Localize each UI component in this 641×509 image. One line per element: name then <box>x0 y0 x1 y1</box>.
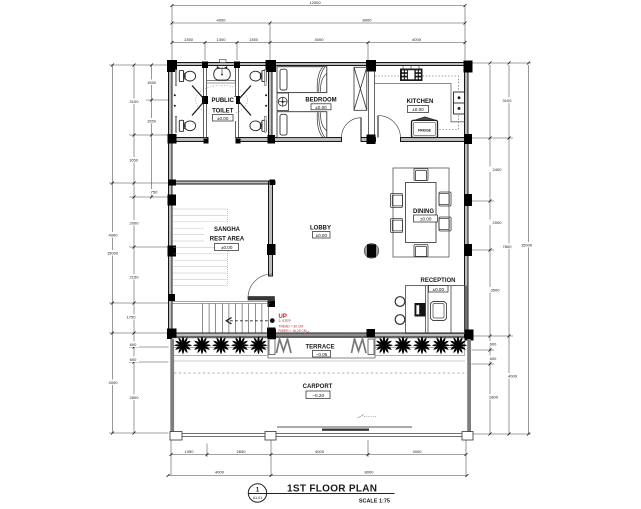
svg-text:BEDROOM: BEDROOM <box>305 98 336 104</box>
svg-text:±0.00: ±0.00 <box>420 217 432 222</box>
svg-text:2000: 2000 <box>493 220 503 225</box>
svg-text:4000: 4000 <box>109 380 119 385</box>
svg-text:3500: 3500 <box>491 288 501 293</box>
svg-text:4000: 4000 <box>217 18 227 23</box>
svg-text:KITCHEN: KITCHEN <box>407 99 434 105</box>
svg-text:2650: 2650 <box>237 449 247 454</box>
svg-text:1350: 1350 <box>184 37 194 42</box>
svg-text:REST AREA: REST AREA <box>210 237 245 243</box>
svg-text:1750: 1750 <box>127 315 137 320</box>
svg-text:±0.00: ±0.00 <box>412 107 424 112</box>
svg-text:SANGHA: SANGHA <box>214 227 241 233</box>
svg-text:A1-01: A1-01 <box>253 496 262 500</box>
svg-text:1300: 1300 <box>217 37 227 42</box>
svg-text:SCALE 1:75: SCALE 1:75 <box>359 499 390 505</box>
svg-text:750: 750 <box>151 190 158 195</box>
svg-text:600: 600 <box>130 342 137 347</box>
svg-text:600: 600 <box>130 357 137 362</box>
svg-text:1350: 1350 <box>185 449 195 454</box>
svg-text:4000: 4000 <box>315 37 325 42</box>
svg-text:RECEPTION: RECEPTION <box>420 278 455 284</box>
svg-text:7800: 7800 <box>503 244 513 249</box>
svg-text:±0.00: ±0.00 <box>433 287 445 292</box>
svg-text:4000: 4000 <box>508 374 518 379</box>
svg-text:2800: 2800 <box>489 395 499 400</box>
svg-text:RISER = 16,25 CM: RISER = 16,25 CM <box>279 329 307 333</box>
svg-text:3100: 3100 <box>503 98 513 103</box>
svg-text:2800: 2800 <box>130 395 140 400</box>
svg-text:CARPORT: CARPORT <box>303 384 333 390</box>
svg-text:−0.05: −0.05 <box>316 352 328 357</box>
svg-text:DINING: DINING <box>413 209 434 215</box>
svg-text:1350: 1350 <box>249 37 259 42</box>
svg-text:8000: 8000 <box>363 18 373 23</box>
svg-text:1550: 1550 <box>147 119 157 124</box>
svg-text:±0.00: ±0.00 <box>217 116 229 121</box>
svg-text:4000: 4000 <box>315 449 325 454</box>
svg-text:15000: 15000 <box>107 251 119 256</box>
svg-text:1650: 1650 <box>129 158 139 163</box>
svg-text:15000: 15000 <box>521 243 533 248</box>
svg-text:3100: 3100 <box>130 99 140 104</box>
svg-text:2000: 2000 <box>130 221 140 226</box>
svg-text:600: 600 <box>490 342 497 347</box>
svg-text:TERRACE: TERRACE <box>305 345 334 351</box>
svg-text:1550: 1550 <box>147 80 157 85</box>
svg-text:TREAD = 30 CM: TREAD = 30 CM <box>279 324 304 328</box>
svg-text:4000: 4000 <box>413 449 423 454</box>
svg-text:2400: 2400 <box>493 167 503 172</box>
svg-text:FRIDGE: FRIDGE <box>418 129 432 133</box>
svg-text:8000: 8000 <box>365 470 375 475</box>
svg-text:4000: 4000 <box>215 470 225 475</box>
svg-text:1ST FLOOR PLAN: 1ST FLOOR PLAN <box>287 484 377 495</box>
svg-text:±0.00: ±0.00 <box>315 105 327 110</box>
svg-text:4000: 4000 <box>412 37 422 42</box>
svg-text:4900: 4900 <box>109 233 119 238</box>
svg-text:12000: 12000 <box>309 0 321 5</box>
svg-text:2: STEP: 2: STEP <box>279 319 292 323</box>
svg-text:±0.00: ±0.00 <box>316 233 328 238</box>
svg-text:−0.20: −0.20 <box>312 393 324 398</box>
svg-text:2150: 2150 <box>130 275 140 280</box>
svg-text:TOILET: TOILET <box>212 108 234 114</box>
svg-text:±0.00: ±0.00 <box>221 245 233 250</box>
svg-text:PUBLIC: PUBLIC <box>212 98 235 104</box>
svg-text:600: 600 <box>490 356 497 361</box>
svg-text:LOBBY: LOBBY <box>310 226 331 232</box>
